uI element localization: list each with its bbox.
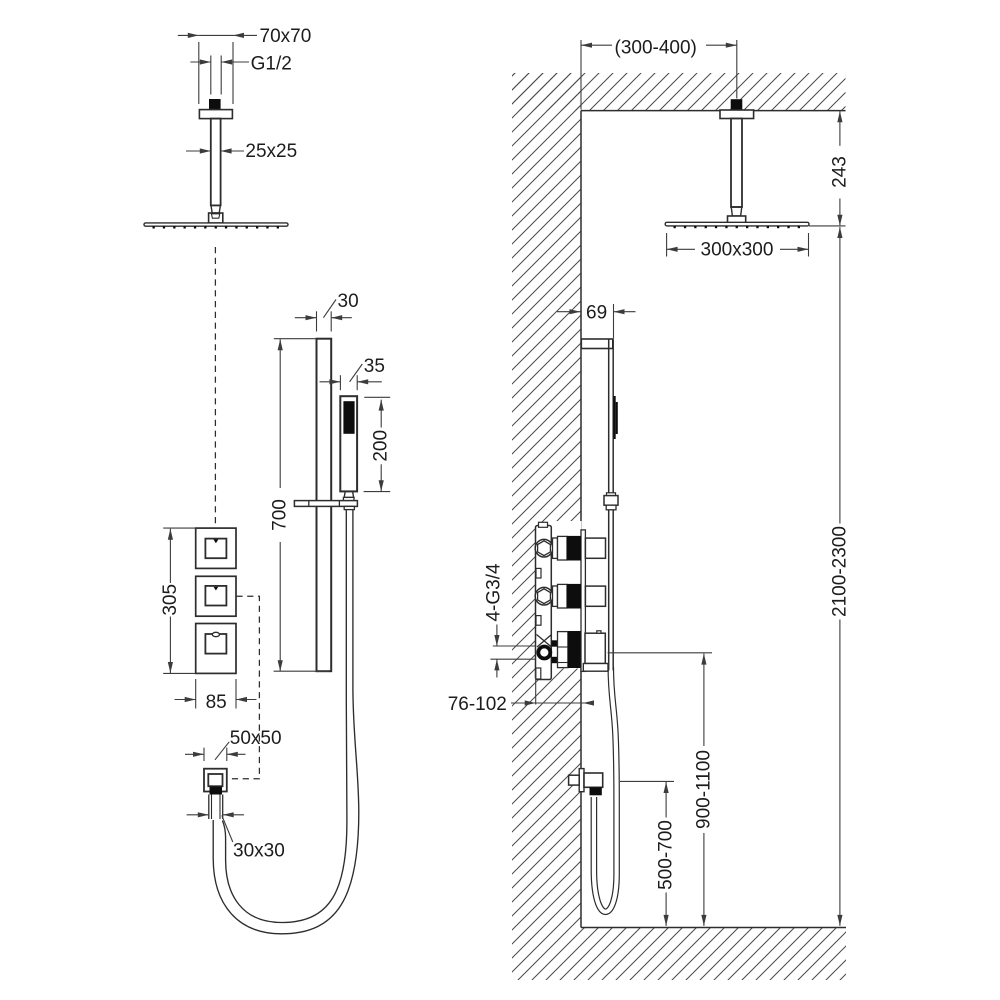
svg-text:G1/2: G1/2 [251, 54, 292, 75]
svg-text:70x70: 70x70 [260, 26, 312, 47]
svg-text:200: 200 [371, 430, 392, 462]
svg-text:50x50: 50x50 [230, 728, 282, 749]
svg-text:69: 69 [586, 302, 607, 323]
svg-text:305: 305 [160, 584, 181, 616]
svg-text:(300-400): (300-400) [615, 38, 697, 59]
svg-text:700: 700 [270, 499, 291, 531]
svg-text:300x300: 300x300 [701, 239, 774, 260]
svg-text:76-102: 76-102 [448, 694, 507, 715]
svg-text:35: 35 [364, 356, 385, 377]
svg-text:900-1100: 900-1100 [693, 750, 714, 829]
svg-text:25x25: 25x25 [245, 141, 297, 162]
svg-text:30: 30 [338, 291, 359, 312]
svg-text:243: 243 [829, 156, 850, 188]
svg-text:500-700: 500-700 [656, 820, 677, 890]
svg-text:4-G3/4: 4-G3/4 [484, 563, 505, 622]
svg-text:2100-2300: 2100-2300 [829, 526, 850, 617]
svg-text:30x30: 30x30 [233, 841, 285, 862]
svg-text:85: 85 [206, 692, 227, 713]
